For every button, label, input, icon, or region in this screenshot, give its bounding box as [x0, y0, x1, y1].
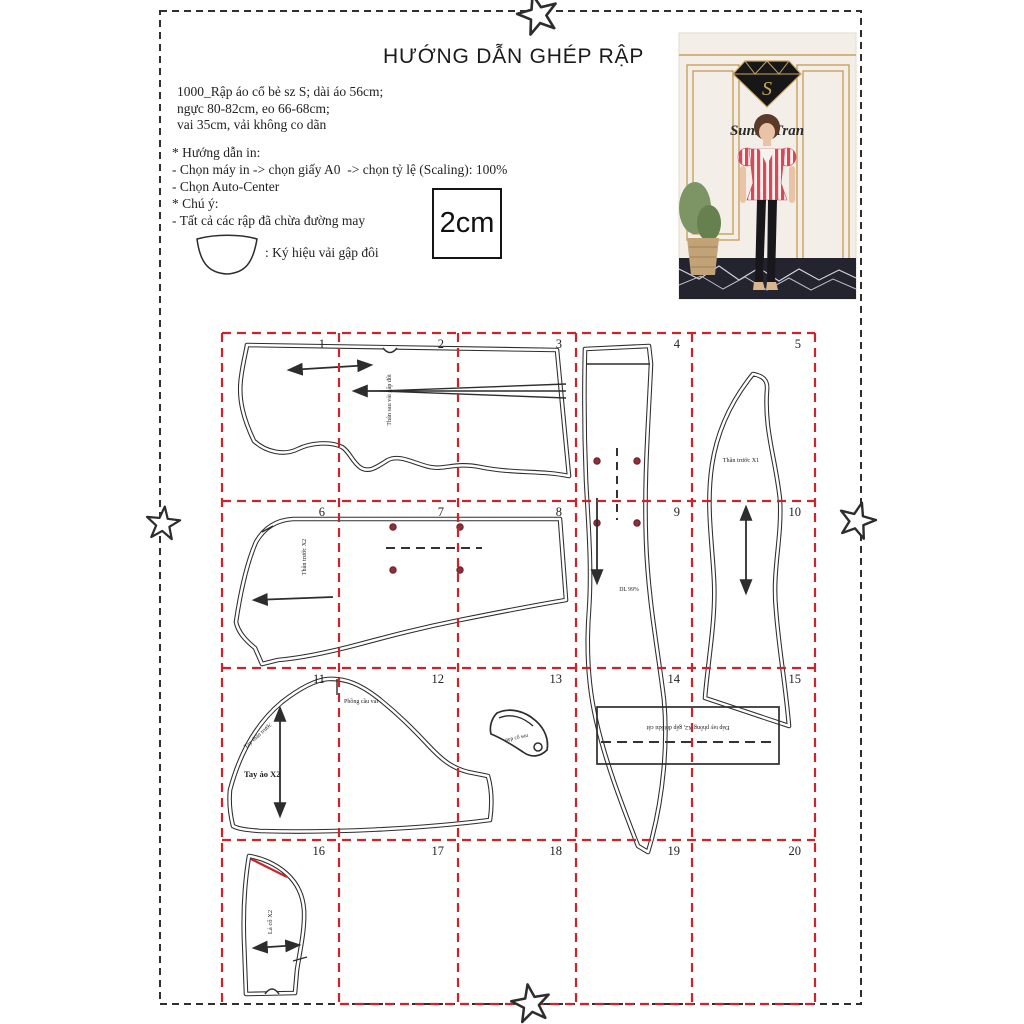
instruction-line: * Hướng dẫn in:: [172, 144, 507, 161]
piece-label-front-facing: Thân trước X1: [723, 457, 760, 464]
shoe: [766, 282, 778, 290]
arm: [740, 166, 746, 203]
piece-label-sleeve: Tay áo X2: [244, 769, 281, 779]
info-line: vai 35cm, vải không co dãn: [177, 117, 383, 134]
fold-symbol-label: : Ký hiệu vải gập đôi: [265, 245, 379, 261]
star-icon: [145, 505, 181, 540]
fold-notch-icon: [265, 989, 279, 994]
fold-notch-icon: [383, 348, 397, 353]
grid-cell-number: 8: [556, 505, 562, 519]
piece-label-band: Đáp tay phồng X2, gấp đôi khi cắt: [646, 724, 729, 731]
grainline-arrow: [254, 597, 333, 600]
grainline-arrow: [289, 365, 371, 370]
grid-cell-number: 1: [319, 337, 325, 351]
piece-label-collar: Lá cổ X2: [267, 910, 274, 934]
grid-cell-number: 11: [313, 672, 325, 686]
grainline-arrow: [254, 945, 299, 948]
piece-label-back: Thân sau vải gấp đôi: [386, 374, 393, 426]
grid-cell-number: 2: [438, 337, 444, 351]
sheet-drawing: Thân sau vải gấp đôi Thân trước X2 Thân …: [0, 0, 1024, 1024]
pattern-piece-front-facing: [705, 374, 789, 726]
print-tile-grid: [222, 333, 815, 1004]
pattern-piece-collar: [244, 856, 307, 994]
grid-cell-number: 4: [674, 337, 681, 351]
face: [759, 123, 775, 141]
grid-cell-number: 17: [432, 844, 445, 858]
grid-cell-number: 12: [432, 672, 445, 686]
grid-cell-number: 10: [789, 505, 802, 519]
button-dot: [634, 520, 640, 526]
grid-cell-number: 14: [668, 672, 681, 686]
star-icon: [836, 498, 880, 541]
piece-label-side: DL 99%: [619, 587, 639, 593]
grid-cell-number: 15: [789, 672, 802, 686]
grid-cell-number: 13: [550, 672, 563, 686]
pattern-piece-neck-facing: [490, 710, 547, 756]
button-notch-icon: [534, 743, 542, 751]
grid-cell-number: 6: [319, 505, 325, 519]
grid-cell-number: 5: [795, 337, 801, 351]
grid-cell-number: 16: [313, 844, 326, 858]
piece-label-front: Thân trước X2: [301, 539, 308, 576]
grid-cell-number: 7: [438, 505, 444, 519]
pattern-piece-side: [584, 346, 665, 852]
grid-cell-number: 18: [550, 844, 563, 858]
fold-symbol-icon: [197, 235, 257, 274]
arm: [789, 166, 795, 203]
button-dot: [634, 458, 640, 464]
star-icon: [513, 0, 561, 36]
model-photo: S Sunny Tran: [679, 33, 856, 299]
grid-cell-number: 19: [668, 844, 681, 858]
grid-cell-number: 3: [556, 337, 562, 351]
scale-box: 2cm: [432, 188, 502, 259]
instruction-line: - Chọn máy in -> chọn giấy A0 -> chọn tỷ…: [172, 161, 507, 178]
page-title: HƯỚNG DẪN GHÉP RẬP: [383, 45, 644, 69]
sleeve-cap-label: Phồng cầu vai: [344, 698, 378, 705]
pattern-piece-back: [240, 345, 569, 476]
pattern-info: 1000_Rập áo cổ bẻ sz S; dài áo 56cm; ngự…: [177, 84, 383, 134]
star-icon: [509, 981, 553, 1023]
brand-logo-letter: S: [762, 78, 772, 100]
pattern-piece-front: [236, 519, 566, 664]
shoe: [753, 282, 765, 290]
scale-box-label: 2cm: [440, 207, 495, 240]
piece-label-neck-facing: nẹp cổ sau: [505, 732, 529, 744]
piece-details: [254, 348, 777, 948]
button-dot: [594, 458, 600, 464]
pattern-instruction-sheet: Thân sau vải gấp đôi Thân trước X2 Thân …: [0, 0, 1024, 1024]
info-line: ngực 80-82cm, eo 66-68cm;: [177, 101, 383, 118]
button-dot: [390, 524, 396, 530]
button-dot: [457, 567, 463, 573]
grid-cell-number: 9: [674, 505, 680, 519]
info-line: 1000_Rập áo cổ bẻ sz S; dài áo 56cm;: [177, 84, 383, 101]
pattern-pieces: [230, 345, 789, 994]
button-dot: [390, 567, 396, 573]
grid-cell-number: 20: [789, 844, 802, 858]
